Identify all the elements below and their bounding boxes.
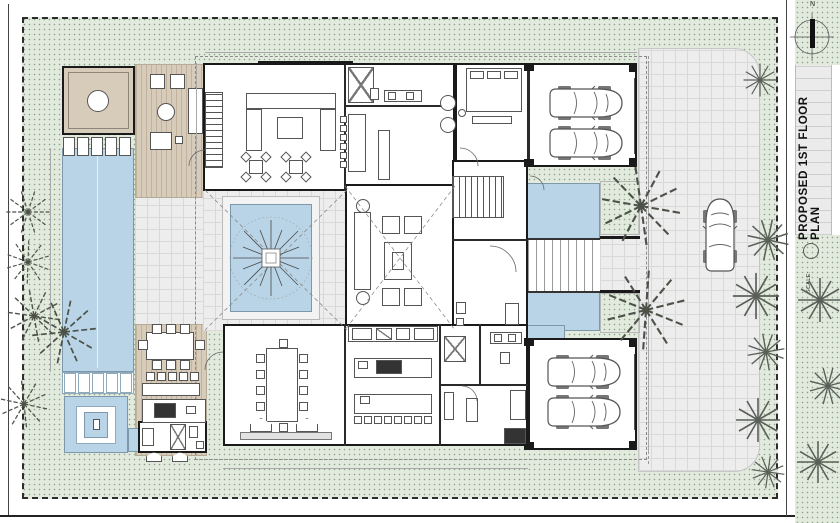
stamp-circle — [803, 243, 819, 259]
bar-stool — [179, 372, 188, 381]
bar-stool — [340, 152, 347, 159]
sheet-bottom-line — [0, 515, 840, 517]
game-table — [249, 160, 263, 174]
pillow — [487, 71, 501, 79]
outdoor-chair — [166, 324, 176, 334]
deck-chair — [170, 74, 185, 89]
plan-title: PROPOSED 1ST FLOOR PLAN — [797, 62, 823, 240]
garage-pier — [629, 441, 637, 450]
bar-stool — [146, 372, 155, 381]
pool-lounger — [92, 373, 104, 393]
outdoor-chair — [180, 324, 190, 334]
sink — [406, 92, 414, 100]
dimension-line — [648, 63, 649, 453]
garage-bottom — [528, 338, 637, 450]
dining-chair — [279, 339, 288, 348]
bar-stool — [340, 161, 347, 168]
shower — [170, 424, 186, 450]
hearth — [240, 432, 332, 440]
outdoor-chair — [152, 324, 162, 334]
pouf — [404, 288, 422, 306]
outdoor-chair — [195, 340, 205, 350]
deck-round-table — [157, 103, 175, 121]
dining-chair — [279, 423, 288, 432]
bench — [472, 116, 512, 124]
cabana-daybed — [63, 137, 75, 156]
wall-hall-mid — [452, 239, 528, 241]
driveway — [638, 48, 760, 472]
pillow — [470, 71, 484, 79]
grill — [154, 403, 176, 418]
island-stool — [354, 416, 362, 424]
pouf — [382, 288, 400, 306]
dining-table — [266, 348, 298, 422]
pouf — [404, 216, 422, 234]
toilet — [500, 352, 510, 364]
bar-stool — [157, 372, 166, 381]
garage-pier — [524, 63, 534, 71]
bar-stool — [340, 143, 347, 150]
mud-bench — [444, 392, 454, 420]
wall-dining-kitchen — [344, 324, 346, 446]
cabana-table — [87, 90, 109, 112]
dimension-line — [196, 63, 197, 191]
spa-bench — [93, 419, 100, 430]
game-table — [289, 160, 303, 174]
garage-pier — [629, 63, 637, 72]
cooktop — [376, 360, 402, 374]
north-label: N — [806, 1, 819, 8]
garage-door-top — [634, 78, 635, 154]
garage-pier — [629, 338, 637, 347]
side-stair — [205, 92, 223, 168]
outdoor-bar-counter — [142, 383, 200, 396]
scale-label: SCALE: — [801, 262, 817, 302]
fridge — [352, 328, 372, 340]
dining-chair — [256, 386, 265, 395]
sectional-sofa-top — [246, 93, 336, 109]
outdoor-dining-table — [146, 332, 194, 360]
pool-lounger — [106, 373, 118, 393]
sink — [358, 361, 368, 369]
sink — [456, 318, 464, 326]
dimension-line — [50, 148, 51, 372]
desk-small — [466, 398, 478, 422]
bar-stool — [340, 125, 347, 132]
main-stair — [452, 176, 504, 218]
cabinet — [414, 328, 434, 340]
garage-pier — [629, 158, 637, 167]
island-stool — [364, 416, 372, 424]
dining-chair — [299, 402, 308, 411]
wall-bath-top — [344, 105, 456, 107]
dining-chair — [299, 386, 308, 395]
sink — [196, 441, 204, 449]
outdoor-chair — [166, 360, 176, 370]
side-table — [356, 291, 370, 305]
pillow — [504, 71, 518, 79]
sectional-sofa-right — [320, 109, 336, 151]
wall-pantry-powder — [479, 324, 481, 386]
outdoor-chair — [152, 360, 162, 370]
coffee-table — [277, 117, 303, 139]
toilet — [370, 88, 379, 100]
dining-chair — [299, 370, 308, 379]
sink — [186, 406, 196, 414]
garage-pier — [524, 159, 534, 167]
island-stool — [384, 416, 392, 424]
side-table — [458, 109, 466, 117]
bar-stool — [190, 372, 199, 381]
dimension-line — [223, 468, 528, 469]
sink — [360, 396, 370, 404]
bench — [142, 428, 154, 446]
sheet-left-margin-line — [8, 4, 9, 516]
dining-chair — [256, 402, 265, 411]
side-table — [356, 199, 370, 213]
island-stool — [414, 416, 422, 424]
island-stool — [394, 416, 402, 424]
cabana-daybed — [77, 137, 89, 156]
outdoor-chair — [180, 360, 190, 370]
lounge-chair — [440, 95, 456, 111]
sink — [508, 334, 516, 342]
island-stool — [374, 416, 382, 424]
island-stool — [404, 416, 412, 424]
island-stool — [424, 416, 432, 424]
garage-pier — [524, 338, 534, 346]
pool-lounger — [120, 373, 132, 393]
sink — [388, 92, 396, 100]
coffee-table-inner — [392, 252, 404, 270]
pool-lounger — [78, 373, 90, 393]
outdoor-chair — [138, 340, 148, 350]
console-table — [505, 303, 519, 325]
sectional-sofa-left — [246, 109, 262, 151]
deck-chair — [150, 132, 172, 150]
pool-lounger — [64, 373, 76, 393]
cabana-daybed — [119, 137, 131, 156]
oven-stack — [376, 328, 392, 340]
sheet-right-divider-line — [786, 0, 787, 516]
cabana-daybed — [91, 137, 103, 156]
utility-equipment — [504, 428, 526, 444]
garage-door-bottom — [634, 354, 635, 430]
shower — [444, 336, 466, 362]
locker — [510, 390, 526, 420]
wall-bedroom-garage — [527, 63, 530, 167]
pool — [62, 148, 134, 372]
counter — [378, 130, 390, 180]
dining-chair — [256, 354, 265, 363]
bar-stool — [340, 134, 347, 141]
titleblock-green-top — [795, 0, 840, 65]
bar-island — [348, 114, 366, 172]
floor-plan-sheet: N PROPOSED 1ST FLOOR PLAN SCALE: — [0, 0, 840, 523]
lounge-chair — [440, 117, 456, 133]
window-frame-top — [258, 61, 353, 65]
bar-stool — [168, 372, 177, 381]
deck-chair — [150, 74, 165, 89]
toilet — [456, 302, 466, 314]
wall-mud — [440, 384, 528, 386]
sofa — [354, 212, 371, 290]
dimension-line — [205, 52, 637, 53]
toilet — [189, 426, 198, 438]
cabana-daybed — [105, 137, 117, 156]
pool-lane-line — [97, 152, 98, 368]
bar-stool — [340, 116, 347, 123]
sink — [494, 334, 502, 342]
pouf — [382, 216, 400, 234]
side-table — [175, 136, 183, 144]
cabinet — [396, 328, 410, 340]
dining-chair — [299, 354, 308, 363]
dining-chair — [256, 370, 265, 379]
